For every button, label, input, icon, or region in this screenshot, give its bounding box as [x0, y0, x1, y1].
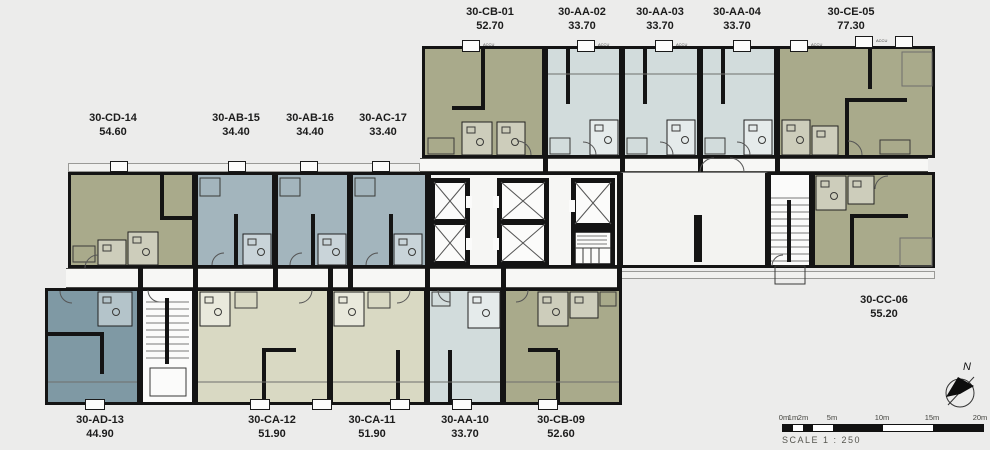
stairwell-east	[768, 172, 812, 268]
accu-box	[390, 399, 410, 410]
unit-label-30-AA-04: 30-AA-0433.70	[713, 6, 761, 33]
unit-30-CB-09	[503, 288, 622, 405]
unit-30-CA-11	[330, 288, 427, 405]
unit-label-30-AC-17: 30-AC-1733.40	[359, 112, 407, 139]
unit-30-AC-17	[350, 172, 428, 268]
unit-30-AA-02	[545, 46, 622, 158]
unit-label-30-AA-02: 30-AA-0233.70	[558, 6, 606, 33]
stairwell-west	[140, 288, 195, 405]
unit-id: 30-CA-12	[248, 414, 296, 428]
unit-label-30-CA-12: 30-CA-1251.90	[248, 414, 296, 441]
floor-plan: ACCU ACCU ACCU ACCU ACCU 30-CB-0152.70 3…	[0, 0, 990, 450]
compass-needle	[946, 377, 974, 397]
unit-area: 34.40	[212, 126, 260, 140]
unit-30-CD-14	[68, 172, 195, 268]
compass-circle	[946, 379, 974, 407]
unit-id: 30-AA-02	[558, 6, 606, 20]
unit-id: 30-CB-01	[466, 6, 514, 20]
unit-area: 77.30	[827, 20, 874, 34]
accu-box	[372, 161, 390, 172]
accu-label: ACCU	[483, 43, 494, 47]
unit-30-AD-13	[45, 288, 140, 405]
unit-id: 30-CD-14	[89, 112, 137, 126]
scale-bar: 0m 1m 2m 5m 10m 15m 20m SCALE 1 : 250	[780, 413, 986, 449]
accu-box	[110, 161, 128, 172]
unit-label-30-CE-05: 30-CE-0577.30	[827, 6, 874, 33]
unit-id: 30-CC-06	[860, 294, 908, 308]
accu-box	[790, 40, 808, 52]
unit-30-CC-06	[812, 172, 935, 268]
scale-caption: SCALE 1 : 250	[782, 435, 861, 445]
unit-label-30-AA-03: 30-AA-0333.70	[636, 6, 684, 33]
unit-label-30-CD-14: 30-CD-1454.60	[89, 112, 137, 139]
accu-box	[300, 161, 318, 172]
unit-label-30-AA-10: 30-AA-1033.70	[441, 414, 489, 441]
unit-label-30-CB-01: 30-CB-0152.70	[466, 6, 514, 33]
unit-id: 30-AA-04	[713, 6, 761, 20]
unit-area: 33.70	[441, 428, 489, 442]
unit-area: 33.70	[558, 20, 606, 34]
unit-area: 54.60	[89, 126, 137, 140]
corridor-top	[420, 158, 928, 172]
accu-box	[577, 40, 595, 52]
unit-id: 30-CE-05	[827, 6, 874, 20]
accu-box	[312, 399, 332, 410]
ledge-strip-right	[620, 271, 935, 279]
unit-area: 33.40	[359, 126, 407, 140]
corridor-middle	[66, 268, 620, 288]
compass-north-label: N	[963, 361, 971, 373]
unit-id: 30-AA-10	[441, 414, 489, 428]
unit-label-30-CB-09: 30-CB-0952.60	[537, 414, 585, 441]
lobby	[620, 172, 768, 268]
unit-30-AB-15	[195, 172, 275, 268]
accu-box	[855, 36, 873, 48]
scale-tick: 10m	[875, 413, 890, 422]
unit-area: 55.20	[860, 308, 908, 322]
accu-label: ACCU	[676, 43, 687, 47]
unit-area: 52.60	[537, 428, 585, 442]
scale-tick: 5m	[827, 413, 837, 422]
accu-box	[462, 40, 480, 52]
accu-box	[250, 399, 270, 410]
unit-id: 30-AB-16	[286, 112, 334, 126]
unit-area: 52.70	[466, 20, 514, 34]
accu-box	[538, 399, 558, 410]
unit-label-30-AB-16: 30-AB-1634.40	[286, 112, 334, 139]
unit-area: 33.70	[636, 20, 684, 34]
unit-id: 30-AD-13	[76, 414, 124, 428]
elevator-core	[428, 172, 620, 268]
unit-id: 30-AC-17	[359, 112, 407, 126]
scale-tick: 15m	[925, 413, 940, 422]
accu-box	[452, 399, 472, 410]
unit-label-30-CC-06: 30-CC-0655.20	[860, 294, 908, 321]
accu-box	[85, 399, 105, 410]
unit-30-CB-01	[422, 46, 545, 158]
accu-box	[655, 40, 673, 52]
unit-30-AA-04	[700, 46, 777, 158]
unit-area: 51.90	[348, 428, 395, 442]
scale-tick: 2m	[798, 413, 808, 422]
unit-30-AA-10	[427, 288, 503, 405]
unit-area: 33.70	[713, 20, 761, 34]
unit-30-CA-12	[195, 288, 330, 405]
accu-box	[895, 36, 913, 48]
accu-box	[228, 161, 246, 172]
accu-label: ACCU	[876, 39, 887, 43]
unit-30-AB-16	[275, 172, 350, 268]
unit-area: 34.40	[286, 126, 334, 140]
unit-label-30-AD-13: 30-AD-1344.90	[76, 414, 124, 441]
unit-area: 51.90	[248, 428, 296, 442]
unit-id: 30-AA-03	[636, 6, 684, 20]
accu-label: ACCU	[811, 43, 822, 47]
scale-tick: 20m	[973, 413, 988, 422]
unit-id: 30-CB-09	[537, 414, 585, 428]
unit-30-AA-03	[622, 46, 700, 158]
unit-30-CE-05	[777, 46, 935, 158]
unit-id: 30-AB-15	[212, 112, 260, 126]
scale-tick: 1m	[788, 413, 798, 422]
unit-id: 30-CA-11	[348, 414, 395, 428]
accu-label: ACCU	[598, 43, 609, 47]
unit-label-30-CA-11: 30-CA-1151.90	[348, 414, 395, 441]
unit-label-30-AB-15: 30-AB-1534.40	[212, 112, 260, 139]
unit-area: 44.90	[76, 428, 124, 442]
accu-box	[733, 40, 751, 52]
scale-bar-rule	[782, 424, 984, 432]
